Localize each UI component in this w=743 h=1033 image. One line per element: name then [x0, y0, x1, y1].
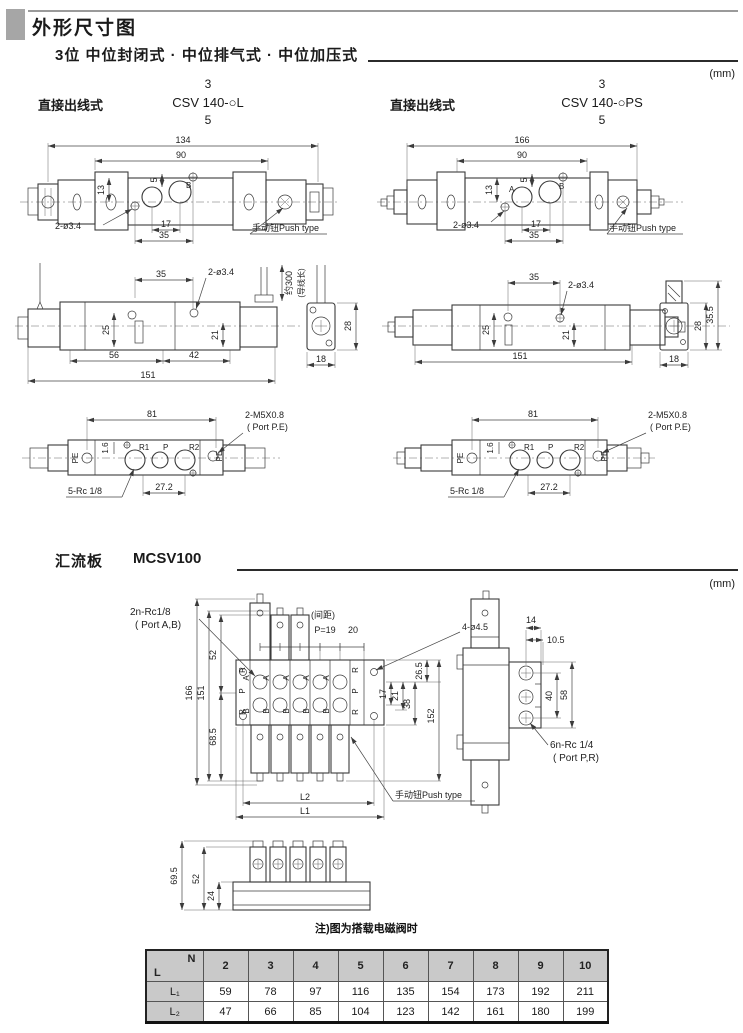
port-r-label: R [351, 709, 360, 715]
note-text: 注)图为搭载电磁阀时 [315, 921, 418, 935]
manifold-front-view: 2n-Rc1/8 ( Port A,B) (间距) P=19 20 4-ø4.5… [130, 594, 488, 820]
port-b-label: B [322, 708, 331, 713]
position-5-right: 5 [542, 113, 662, 127]
table-cell: 66 [248, 1002, 293, 1023]
table-cell: 47 [203, 1002, 248, 1023]
row-label: L₁ [146, 982, 203, 1002]
port-p-label: P [548, 443, 553, 452]
dim-152: 152 [426, 708, 436, 723]
thread-callout: 2-M5X0.8 [245, 410, 284, 420]
model-left: CSV 140-○L [148, 95, 268, 110]
manifold-front-row: 69.5 52 24 注)图为搭载电磁阀时 [169, 841, 418, 935]
dim-5: 5 [149, 177, 159, 182]
manual-button-callout: 手动钮Push type [395, 789, 462, 800]
port-r2-label: R2 [189, 443, 200, 452]
position-3-right: 3 [542, 77, 662, 91]
thread-port-callout: ( Port P.E) [247, 422, 288, 432]
dim-25: 25 [101, 325, 111, 335]
side-view-right: 35 2-ø3.4 25 21 151 28 35.5 18 [382, 272, 730, 368]
col-header: 5 [338, 950, 383, 982]
dim-68-5: 68.5 [208, 728, 218, 746]
dim-81: 81 [528, 409, 538, 419]
port-pe-label: PE [71, 453, 80, 464]
dim-52: 52 [191, 874, 201, 884]
dim-69-5: 69.5 [169, 867, 179, 885]
page-title: 外形尺寸图 [32, 13, 137, 40]
dim-1-6: 1.6 [486, 442, 495, 454]
table-cell: 199 [563, 1002, 608, 1023]
port-r1-label: R1 [524, 443, 535, 452]
table-corner-cell: N L [146, 950, 203, 982]
table-cell: 192 [518, 982, 563, 1002]
table-cell: 135 [383, 982, 428, 1002]
table-cell: 85 [293, 1002, 338, 1023]
side-view-left: 35 2-ø3.4 约300 (导线长) 25 21 56 42 151 [15, 263, 358, 384]
model-right: CSV 140-○PS [542, 95, 662, 110]
rc-callout: 5-Rc 1/8 [68, 486, 102, 496]
port-p-label: P [163, 443, 168, 452]
hole-callout: 2-ø3.4 [208, 267, 234, 277]
dim-35: 35 [159, 230, 169, 240]
dimension-table: N L 2 3 4 5 6 7 8 9 10 L₁ 59 78 97 116 1… [145, 949, 609, 1024]
section2-rule [237, 569, 738, 571]
position-3-left: 3 [148, 77, 268, 91]
rc-callout: 2n-Rc1/8 [130, 607, 171, 618]
port-pe-label: PE [215, 451, 224, 462]
manual-button-callout: 手动钮Push type [252, 222, 319, 233]
col-header: 2 [203, 950, 248, 982]
top-views-drawing: 134 90 13 5 B 17 35 2-ø3.4 手动钮Push type [15, 130, 740, 258]
unit-label: (mm) [660, 68, 735, 80]
rc-port-callout: ( Port P,R) [553, 753, 599, 764]
table-cell: 211 [563, 982, 608, 1002]
thread-callout: 2-M5X0.8 [648, 410, 687, 420]
dim-35: 35 [529, 230, 539, 240]
dim-18: 18 [316, 354, 326, 364]
hole-callout: 2-ø3.4 [568, 280, 594, 290]
dim-26-5: 26.5 [414, 662, 424, 680]
section-marker [6, 9, 25, 40]
wiring-label-left: 直接出线式 [38, 95, 103, 114]
top-view-left: 134 90 13 5 B 17 35 2-ø3.4 手动钮Push type [20, 135, 337, 244]
port-a-label: A [322, 675, 331, 681]
table-cell: 116 [338, 982, 383, 1002]
dim-5: 5 [519, 177, 529, 182]
port-a-label: A [242, 675, 251, 681]
dim-25: 25 [481, 325, 491, 335]
table-cell: 180 [518, 1002, 563, 1023]
port-r-label: R [351, 667, 360, 673]
dim-17: 17 [531, 219, 541, 229]
dim-10-5: 10.5 [547, 635, 565, 645]
dim-18: 18 [669, 354, 679, 364]
dim-20: 20 [348, 625, 358, 635]
port-b-label: B [559, 182, 564, 191]
port-p-label: P [238, 688, 247, 693]
rc-port-callout: ( Port A,B) [135, 620, 181, 631]
wiring-label-right: 直接出线式 [390, 95, 455, 114]
dim-1-6: 1.6 [101, 442, 110, 454]
dim-151: 151 [140, 370, 155, 380]
table-cell: 59 [203, 982, 248, 1002]
table-cell: 123 [383, 1002, 428, 1023]
dim-35: 35 [529, 272, 539, 282]
dim-27-2: 27.2 [155, 482, 173, 492]
dim-52: 52 [208, 650, 218, 660]
manual-button-callout: 手动钮Push type [609, 222, 676, 233]
section1-title: 3位 中位封闭式 · 中位排气式 · 中位加压式 [55, 44, 358, 65]
port-a-label: A [509, 185, 515, 194]
table-header-row: N L 2 3 4 5 6 7 8 9 10 [146, 950, 608, 982]
rc-callout: 6n-Rc 1/4 [550, 740, 594, 751]
table-cell: 142 [428, 1002, 473, 1023]
port-b-label: B [186, 181, 191, 190]
pitch-note: (间距) [311, 609, 335, 620]
dim-56: 56 [109, 350, 119, 360]
port-r-label: R [238, 709, 247, 715]
dim-166: 166 [184, 685, 194, 700]
table-cell: 97 [293, 982, 338, 1002]
bottom-views-drawing: PE 1.6 R1 P R2 PE 81 2-M5X0.8 ( Port P.E… [10, 398, 740, 510]
bottom-view-right: PE 1.6 R1 P R2 PE 81 2-M5X0.8 ( Port P.E… [393, 409, 691, 497]
port-a-label: A [262, 675, 271, 681]
port-b-label: B [302, 708, 311, 713]
table-row-l2: L₂ 47 66 85 104 123 142 161 180 199 [146, 1002, 608, 1023]
port-r1-label: R1 [139, 443, 150, 452]
side-views-drawing: 35 2-ø3.4 约300 (导线长) 25 21 56 42 151 [10, 255, 740, 398]
col-header: 4 [293, 950, 338, 982]
dim-21: 21 [561, 330, 571, 340]
table-row-l1: L₁ 59 78 97 116 135 154 173 192 211 [146, 982, 608, 1002]
bottom-view-left: PE 1.6 R1 P R2 PE 81 2-M5X0.8 ( Port P.E… [22, 409, 288, 497]
dim-81: 81 [147, 409, 157, 419]
dim-l2: L2 [300, 792, 310, 802]
top-rule [28, 10, 738, 12]
dim-151: 151 [196, 685, 206, 700]
dim-166: 166 [514, 135, 529, 145]
port-a-label: A [302, 675, 311, 681]
dim-14: 14 [526, 615, 536, 625]
section2-model: MCSV100 [133, 550, 201, 567]
port-p-label: P [351, 688, 360, 693]
dim-134: 134 [175, 135, 190, 145]
corner-n-label: N [188, 953, 196, 965]
mount-holes-callout: 4-ø4.5 [462, 622, 488, 632]
col-header: 10 [563, 950, 608, 982]
rc-callout: 5-Rc 1/8 [450, 486, 484, 496]
dim-27-2: 27.2 [540, 482, 558, 492]
dim-28: 28 [693, 321, 703, 331]
dim-17: 17 [378, 689, 388, 699]
dim-21: 21 [210, 330, 220, 340]
pitch-label: P=19 [314, 625, 335, 635]
hole-callout: 2-ø3.4 [453, 220, 479, 230]
table-cell: 161 [473, 1002, 518, 1023]
dim-90: 90 [176, 150, 186, 160]
dim-40: 40 [544, 691, 554, 701]
port-pe-label: PE [600, 451, 609, 462]
port-a-label: A [282, 675, 291, 681]
manifold-bottom-drawing: 69.5 52 24 注)图为搭载电磁阀时 [140, 835, 600, 940]
dim-38: 38 [402, 699, 412, 709]
col-header: 8 [473, 950, 518, 982]
dim-90: 90 [517, 150, 527, 160]
port-b-label: B [262, 708, 271, 713]
dim-l1: L1 [300, 806, 310, 816]
table-cell: 78 [248, 982, 293, 1002]
dim-58: 58 [559, 690, 569, 700]
dim-151: 151 [512, 351, 527, 361]
table-cell: 104 [338, 1002, 383, 1023]
col-header: 6 [383, 950, 428, 982]
dim-42: 42 [189, 350, 199, 360]
dim-35: 35 [156, 269, 166, 279]
dim-21: 21 [390, 691, 400, 701]
manifold-drawing: 2n-Rc1/8 ( Port A,B) (间距) P=19 20 4-ø4.5… [95, 585, 740, 840]
row-label: L₂ [146, 1002, 203, 1023]
top-view-right: 166 90 13 5 A B 17 35 2-ø3.4 手动钮Push typ… [377, 135, 683, 244]
col-header: 3 [248, 950, 293, 982]
table-cell: 154 [428, 982, 473, 1002]
position-5-left: 5 [148, 113, 268, 127]
dim-35-5: 35.5 [705, 306, 715, 324]
dim-28: 28 [343, 321, 353, 331]
section2-title: 汇流板 [55, 550, 103, 571]
port-r-label: R [238, 667, 247, 673]
dim-13: 13 [96, 185, 106, 195]
port-b-label: B [282, 708, 291, 713]
corner-l-label: L [154, 967, 161, 979]
col-header: 9 [518, 950, 563, 982]
catalog-page: 外形尺寸图 3位 中位封闭式 · 中位排气式 · 中位加压式 (mm) 直接出线… [0, 0, 743, 1033]
table-cell: 173 [473, 982, 518, 1002]
thread-port-callout: ( Port P.E) [650, 422, 691, 432]
dim-24: 24 [206, 891, 216, 901]
lead-length: 约300 [283, 271, 294, 295]
dim-17: 17 [161, 219, 171, 229]
dim-13: 13 [484, 185, 494, 195]
hole-callout: 2-ø3.4 [55, 221, 81, 231]
section1-rule [368, 60, 738, 62]
lead-length-note: (导线长) [296, 268, 306, 298]
port-pe-label: PE [456, 453, 465, 464]
port-r2-label: R2 [574, 443, 585, 452]
col-header: 7 [428, 950, 473, 982]
